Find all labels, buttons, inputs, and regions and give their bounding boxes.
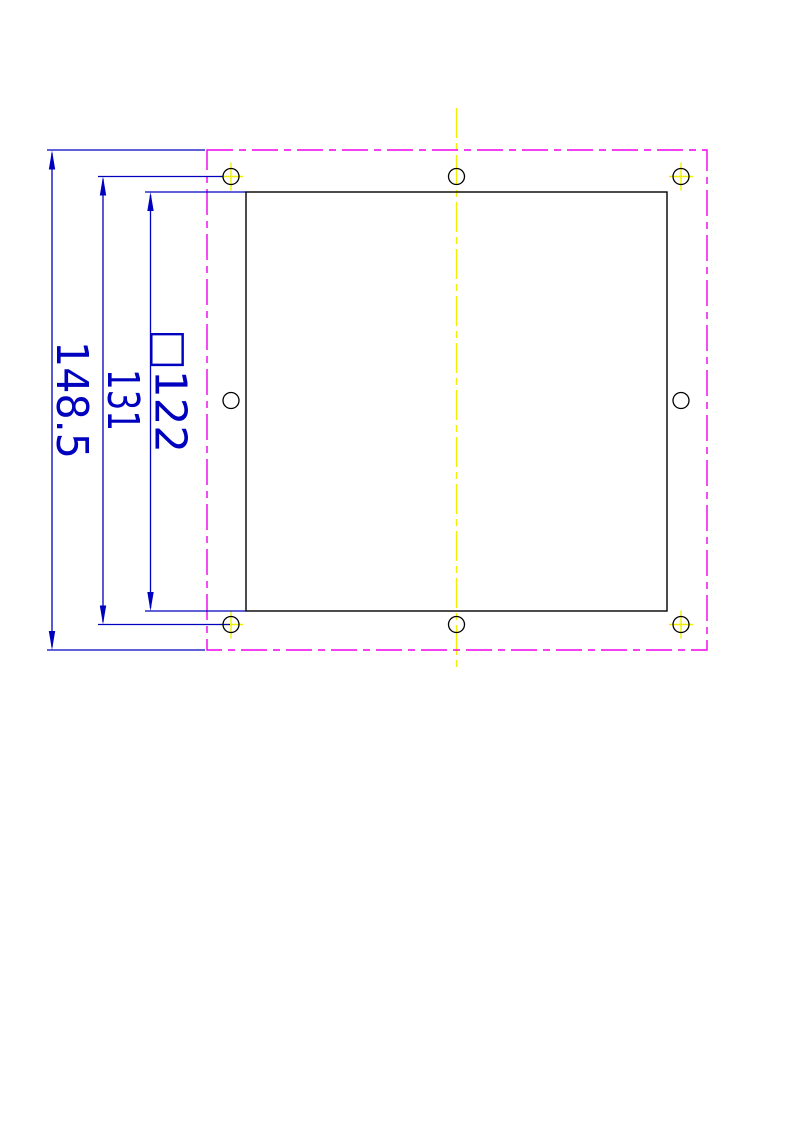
arrow-overall-bottom	[49, 631, 55, 650]
mounting-hole-middle-left	[223, 393, 239, 409]
arrow-cutout-bottom	[147, 592, 153, 611]
arrow-holes-bottom	[100, 606, 106, 625]
arrow-cutout-top	[147, 192, 153, 211]
dimension-text-group: 148.5 131 □122	[46, 329, 196, 459]
dimension-text-overall-height: 148.5	[46, 341, 97, 459]
dimension-text-hole-spacing: 131	[97, 369, 148, 431]
mounting-hole-middle-right	[673, 393, 689, 409]
arrow-overall-top	[49, 151, 55, 170]
arrow-holes-top	[100, 177, 106, 196]
dimension-text-cutout-size: □122	[145, 329, 196, 453]
cad-drawing: 148.5 131 □122	[0, 0, 802, 1144]
cad-drawing-canvas: 148.5 131 □122	[0, 0, 802, 1144]
